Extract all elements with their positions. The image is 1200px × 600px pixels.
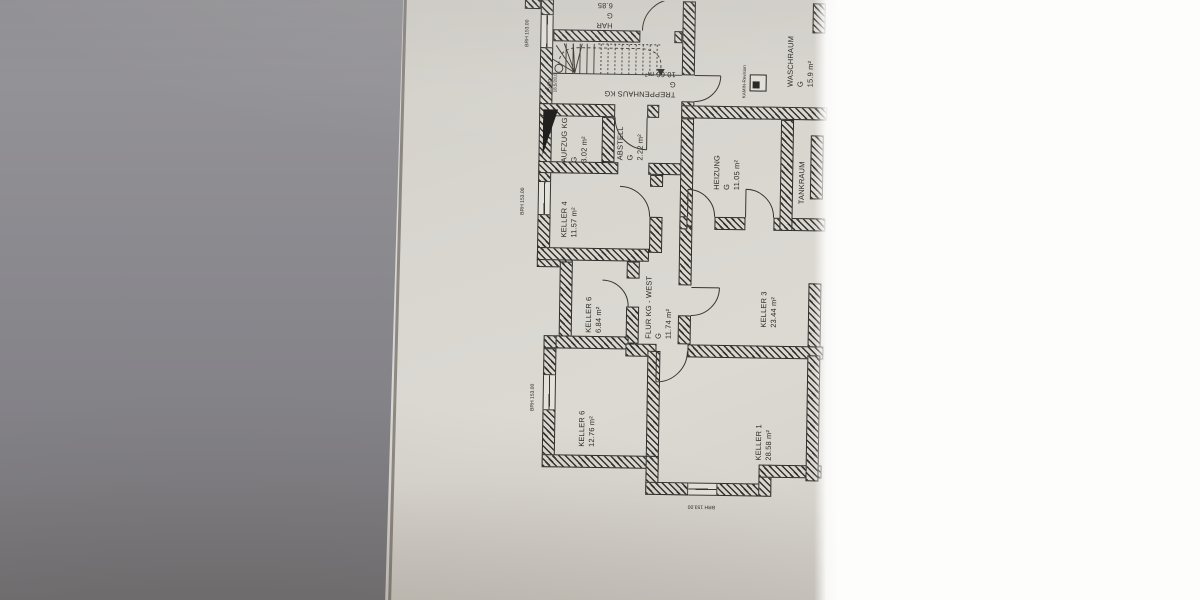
room-label-waschraum: WASCHRAUM G 15.9 m²: [786, 36, 816, 88]
room-label-abstell: ABSTELL G 2.22 m²: [615, 126, 645, 160]
door-arc: [688, 189, 715, 216]
room-label-treppenhaus: TREPPENHAUS KG G 10.66 m²: [595, 64, 676, 99]
annotation-brh: BRH 153.00: [520, 188, 527, 215]
room-label-keller-4: KELLER 4 11.57 m²: [559, 201, 579, 238]
annotation-brh: BRH 153.00: [677, 500, 715, 510]
door-arc: [691, 287, 719, 315]
door-arc: [642, 0, 674, 31]
door-arc: [656, 351, 687, 382]
overexposed-area: [814, 0, 1200, 600]
annotation-brh: BRH 153.00: [524, 20, 531, 47]
room-label-heizung: HEIZUNG G 11.05 m²: [712, 155, 742, 190]
room-label-tankraum: TANKRAUM: [797, 161, 807, 204]
room-label-keller-6-small: KELLER 6 6.84 m²: [584, 297, 604, 334]
room-label-keller-1: KELLER 1 28.58 m²: [754, 424, 774, 461]
room-label-keller-3: KELLER 3 23.44 m²: [759, 291, 779, 328]
door-arc: [602, 280, 628, 306]
annotation-brh: BRH 153.00: [529, 384, 536, 411]
door-arc: [694, 75, 720, 101]
kamin-inner-square: [753, 81, 760, 88]
stair-walkline-start: [555, 64, 563, 72]
photo-of-floor-plan: HAR G 6.85 TREPPENHAUS KG G 10.66 m² AUF…: [0, 0, 1200, 600]
door-arc: [620, 186, 650, 216]
annotation-stairs: 15 Stg 18,5/28,0: [546, 73, 558, 92]
door-arc: [746, 189, 774, 217]
room-label-keller-6: KELLER 6 12.76 m²: [577, 410, 597, 447]
kamin-symbol: [750, 74, 767, 91]
room-label-flur-kg-west: FLUR KG - WEST G 11.74 m²: [644, 276, 674, 339]
annotation-kamin: KAMIN-Revision: [741, 65, 747, 98]
room-label-har: HAR G 6.85: [556, 0, 612, 30]
room-label-aufzug: AUFZUG KG G 3.02 m²: [559, 117, 589, 163]
